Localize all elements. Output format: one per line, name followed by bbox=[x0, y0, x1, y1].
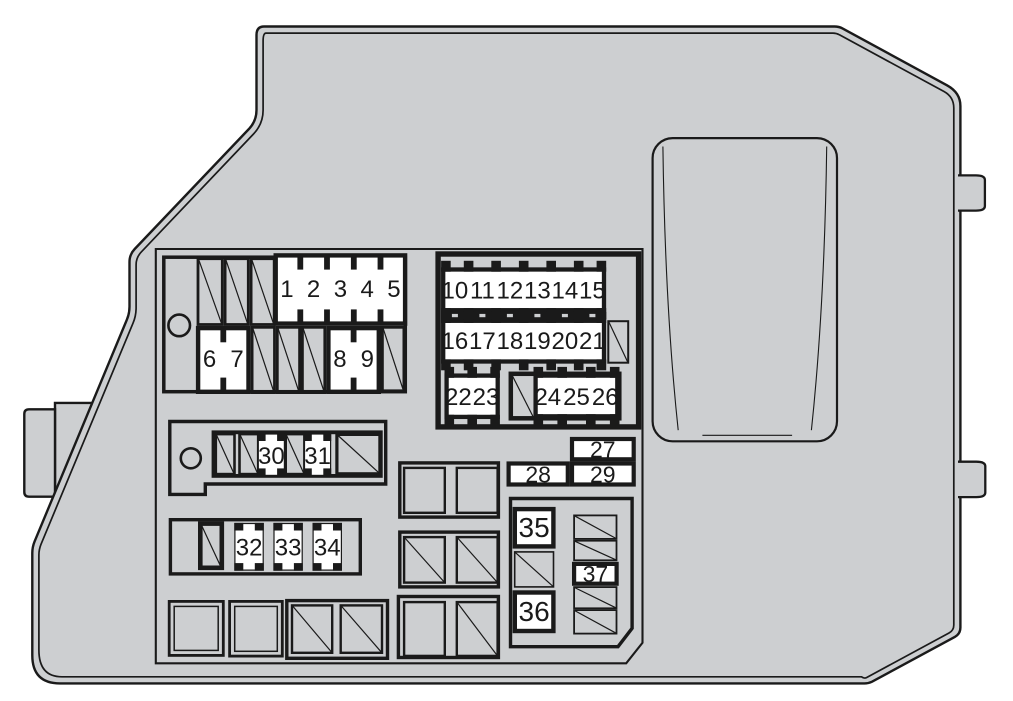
svg-text:33: 33 bbox=[275, 535, 302, 562]
svg-text:22: 22 bbox=[445, 384, 472, 411]
svg-text:28: 28 bbox=[525, 462, 551, 488]
svg-text:10: 10 bbox=[442, 277, 469, 304]
svg-text:6: 6 bbox=[203, 346, 216, 373]
svg-text:3: 3 bbox=[334, 276, 347, 303]
svg-text:2: 2 bbox=[307, 276, 320, 303]
svg-text:15: 15 bbox=[579, 277, 606, 304]
svg-text:35: 35 bbox=[519, 512, 550, 543]
svg-text:11: 11 bbox=[470, 277, 495, 304]
svg-text:1: 1 bbox=[280, 276, 293, 303]
svg-text:7: 7 bbox=[230, 346, 243, 373]
svg-text:32: 32 bbox=[236, 535, 263, 562]
svg-text:27: 27 bbox=[590, 437, 616, 463]
svg-text:36: 36 bbox=[519, 596, 550, 627]
svg-text:12: 12 bbox=[497, 277, 524, 304]
svg-text:29: 29 bbox=[590, 462, 616, 488]
svg-text:23: 23 bbox=[473, 384, 500, 411]
svg-text:26: 26 bbox=[592, 384, 619, 411]
svg-text:5: 5 bbox=[387, 276, 400, 303]
svg-text:37: 37 bbox=[583, 561, 609, 587]
svg-text:4: 4 bbox=[361, 276, 374, 303]
svg-text:31: 31 bbox=[304, 443, 331, 470]
svg-text:25: 25 bbox=[563, 384, 590, 411]
svg-text:19: 19 bbox=[524, 328, 551, 355]
svg-text:18: 18 bbox=[497, 328, 524, 355]
svg-text:24: 24 bbox=[534, 384, 561, 411]
svg-text:14: 14 bbox=[552, 277, 579, 304]
svg-text:20: 20 bbox=[552, 328, 579, 355]
svg-text:30: 30 bbox=[258, 443, 285, 470]
svg-text:13: 13 bbox=[524, 277, 551, 304]
svg-text:9: 9 bbox=[361, 346, 374, 373]
svg-text:21: 21 bbox=[579, 328, 606, 355]
svg-text:16: 16 bbox=[442, 328, 469, 355]
svg-text:17: 17 bbox=[469, 328, 496, 355]
svg-text:8: 8 bbox=[333, 346, 346, 373]
svg-text:34: 34 bbox=[314, 535, 341, 562]
